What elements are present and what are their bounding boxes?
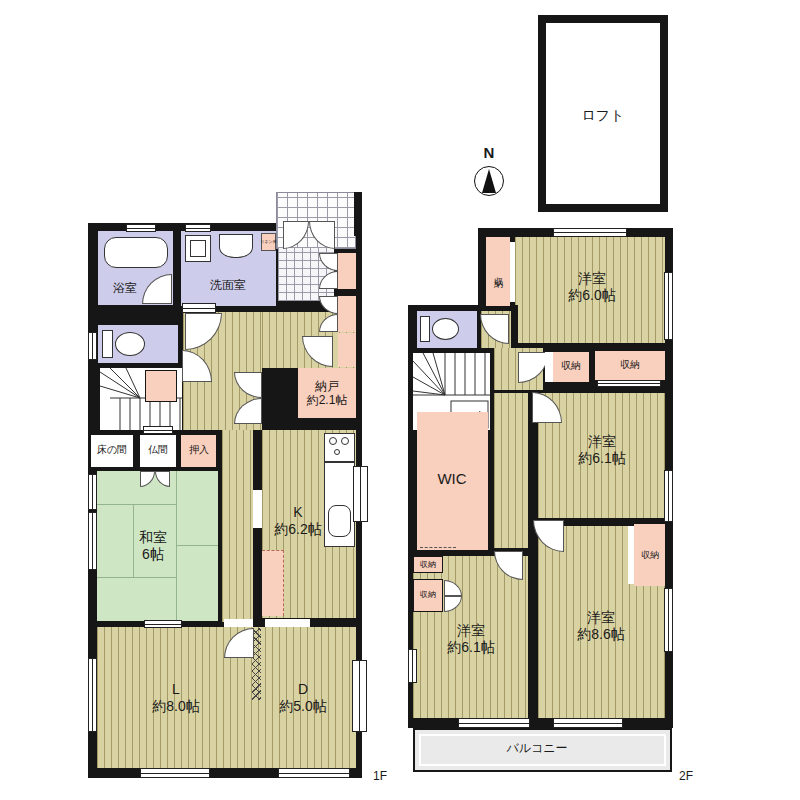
washroom-label: 洗面室 — [195, 278, 261, 292]
floor1-label: 1F — [366, 768, 394, 784]
loft-label: ロフト — [553, 105, 653, 125]
washroom-door-slider — [182, 303, 216, 313]
oshiire-label: 押入 — [179, 443, 219, 457]
vanity-sink-icon — [219, 234, 253, 258]
closet-2f-west2-label: 収納 — [412, 589, 444, 600]
balcony-label: バルコニー — [497, 741, 577, 756]
window — [408, 649, 417, 683]
tatami-seam — [97, 577, 177, 578]
wic-label: WIC — [422, 470, 482, 488]
window — [143, 426, 173, 434]
window — [664, 272, 673, 340]
window — [88, 332, 97, 360]
washitsu-label: 和室 6帖 — [113, 527, 193, 565]
window — [352, 660, 367, 732]
room-2f-61w-label: 洋室 約6.1帖 — [429, 620, 513, 658]
butsuma-label: 仏間 — [138, 443, 178, 457]
window — [664, 470, 673, 522]
window — [458, 718, 530, 728]
stove-burner — [341, 437, 349, 445]
kitchen-label: K 約6.2帖 — [258, 502, 338, 540]
linen-label: リネン庫 — [261, 237, 276, 247]
washing-machine-drum — [190, 240, 206, 257]
storeroom-label: 納戸 約2.1帖 — [296, 378, 358, 408]
north-arrow-triangle — [482, 169, 496, 193]
closet-2f-mid-label: 収納 — [551, 359, 591, 373]
wic-dashed-edge — [420, 547, 456, 549]
washitsu-living-slider — [144, 620, 182, 628]
ld-wall-gap — [224, 619, 253, 627]
kitchen-window — [353, 466, 368, 522]
toilet-tank-2f — [420, 316, 430, 342]
shoe-closet-2 — [338, 296, 356, 332]
north-label: N — [474, 144, 504, 162]
closet-2f-86-label: 収納 — [628, 548, 672, 562]
window — [278, 768, 350, 778]
f2-hall — [494, 393, 528, 548]
window — [140, 768, 210, 778]
window — [126, 224, 156, 232]
floor2-label: 2F — [672, 768, 700, 784]
pantry-closet — [262, 550, 284, 616]
window — [185, 224, 211, 232]
tokonoma-label: 床の間 — [89, 443, 135, 457]
toilet-icon-2f — [432, 318, 459, 340]
closet-2f-topleft-label: 収納 — [489, 250, 507, 294]
bath-label: 浴室 — [100, 281, 150, 295]
living-label: L 約8.0帖 — [136, 679, 216, 717]
room-2f-61e-label: 洋室 約6.1帖 — [560, 431, 644, 469]
kitchen-door-gap — [253, 490, 262, 528]
f1-corridor — [222, 430, 253, 622]
closet-2f-mid-right-front — [597, 380, 661, 387]
dining-label: D 約5.0帖 — [263, 679, 343, 717]
room-2f-60-label: 洋室 約6.0帖 — [550, 268, 634, 306]
stove-icon — [324, 433, 355, 462]
stair-closet — [145, 370, 177, 402]
bathtub-icon — [104, 237, 168, 268]
closet-2f-west1-label: 収納 — [412, 559, 444, 570]
stove-burner — [334, 449, 340, 455]
floor-plan: ロフト N 浴室 リネン庫 洗面室 — [0, 0, 800, 800]
window — [664, 588, 673, 652]
window — [553, 228, 627, 237]
kd-wall-gap — [265, 619, 310, 627]
entry-side-closet — [338, 333, 356, 367]
stove-burner — [329, 437, 337, 445]
window — [88, 658, 97, 732]
window — [88, 512, 97, 570]
toilet-icon-1f — [115, 332, 145, 356]
f2-wall-stub — [511, 305, 518, 350]
tatami-seam — [97, 504, 177, 505]
window — [88, 474, 97, 510]
toilet-tank-1f — [102, 330, 113, 358]
shoe-closet-1 — [338, 253, 356, 289]
window — [553, 718, 623, 728]
closet-2f-mid-right-label: 収納 — [608, 358, 652, 372]
porch-wall — [354, 192, 362, 236]
room-2f-86-label: 洋室 約8.6帖 — [559, 607, 643, 645]
